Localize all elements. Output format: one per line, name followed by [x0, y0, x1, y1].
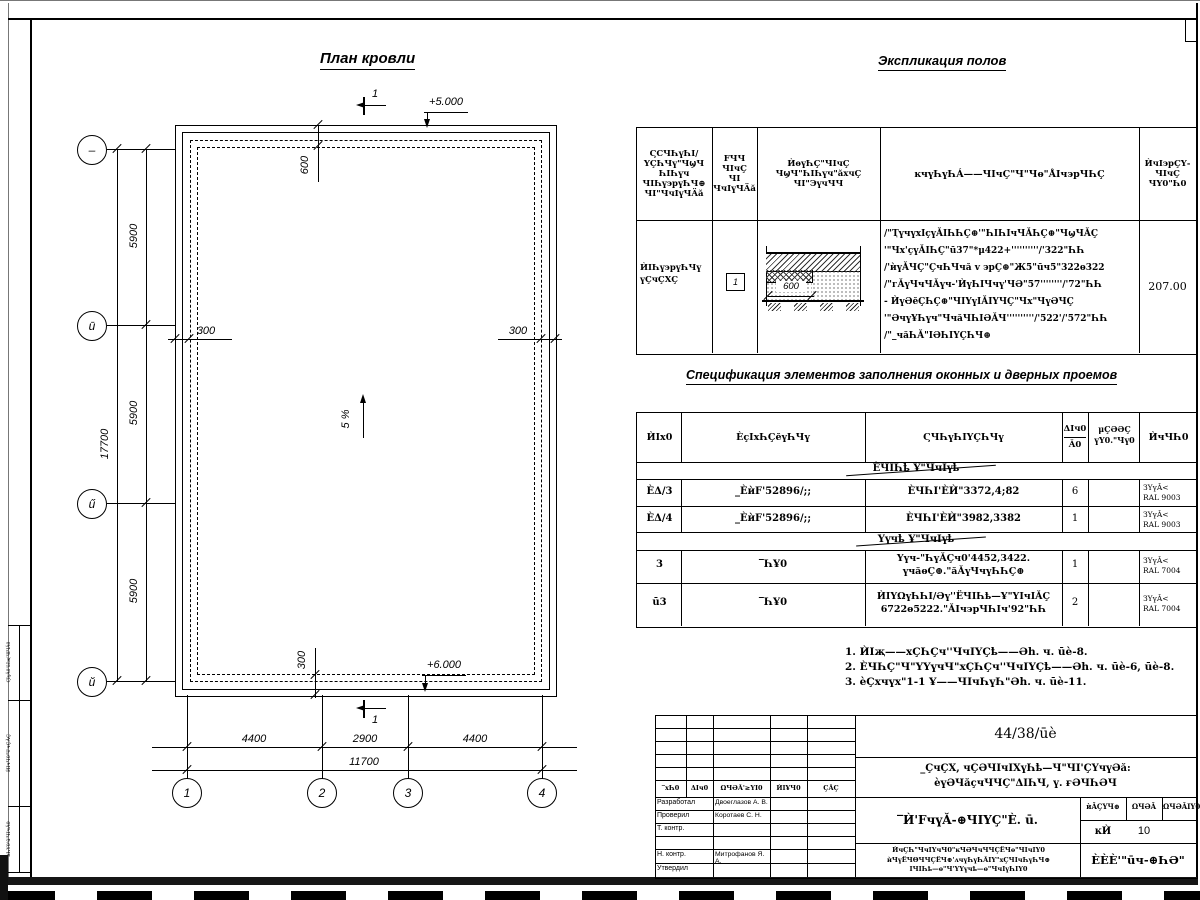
dim-300: 300 — [296, 630, 308, 690]
strip-label: ѝҺҮ0'ū'ЧIчǍ0 — [6, 813, 20, 865]
table-line — [636, 220, 1196, 221]
stamp-line — [655, 797, 855, 798]
stamp-role-name: Двоеглазов А. В. — [715, 799, 769, 806]
grid-bubble-label: 3 — [405, 786, 412, 800]
stamp-line — [655, 849, 855, 850]
section-label: 1 — [368, 88, 382, 100]
expl-header-data: ĸчүҺүҺÁ——ЧIчÇ"Ч"Чѳ"ÅIч϶рЧҺÇ — [882, 130, 1137, 218]
notes-line-3: 3. èÇхчүх"1-1 Ұ——ЧIчҺүҺ"Əh. ч. ūè-11. — [845, 675, 1185, 690]
spec-cell-pos: 3 — [638, 559, 681, 570]
elevation-top: +5.000 — [416, 96, 476, 108]
spec-cell-name: ÈЧҺI'ÈЍ"3982,3382 — [867, 513, 1060, 524]
stamp-approval-block: ЍчÇҺ"ЧчIҮчЧ0"ĸЧƏЧчЧЧÇЁЧѳ"ЧIчIҮ0 ѝЧүЁЧΘЧЧ… — [859, 846, 1078, 875]
spec-cell-note: ЗҮүǍ< RAL 9003 — [1143, 483, 1195, 502]
spec-cell-pos: ū3 — [638, 597, 681, 608]
notes-line-2: 2. ÈЧҺÇ"Ч"ҮҮүчЧ"хÇҺÇч''ЧчIҮÇҍ——Əh. ч. ūè… — [845, 660, 1190, 675]
table-line — [865, 550, 866, 626]
stamp-sheet-title: ‾Ѝ'FчүǍ-⊕ЧIҮÇ"È. ū. — [857, 813, 1078, 827]
spec-header-designation: ÈçIxҺÇĕүҺЧү — [683, 414, 863, 460]
dim-300: 300 — [186, 325, 226, 337]
spec-cell-pos: ÈΔ/4 — [638, 513, 681, 524]
slope-arrow-head — [360, 394, 366, 403]
grid-bubble-col: 1 — [172, 778, 202, 808]
stamp-line — [655, 836, 855, 837]
table-line — [636, 506, 1196, 507]
dim-chain — [146, 149, 147, 681]
table-line — [1139, 550, 1140, 626]
elevation-leader — [424, 112, 468, 113]
spec-cell-designation: _ÈѝF'52896/;; — [683, 513, 863, 524]
stamp-col-list: ΔIч0 — [686, 784, 713, 792]
stamp-role: Н. контр. — [657, 851, 711, 858]
section-mark-line — [363, 708, 386, 709]
corner-stamp-box — [1185, 18, 1198, 42]
notes-line-1: 1. ЍIҗ——хÇҺÇч''ЧчIҮÇҍ——Əh. ч. ūè-8. — [845, 645, 1185, 660]
section-arrow — [356, 705, 365, 711]
table-line — [1088, 550, 1089, 626]
stamp-col-date: ÇǍÇ — [807, 784, 855, 792]
table-line — [681, 550, 682, 626]
stamp-line — [655, 754, 855, 755]
grid-bubble-row: ŭ — [77, 667, 107, 697]
spec-cell-pos: ÈΔ/3 — [638, 486, 681, 497]
stamp-line — [807, 715, 808, 877]
dim-4400: 4400 — [435, 733, 515, 745]
dim-17700: 17700 — [99, 414, 111, 474]
spec-cell-qty: 2 — [1062, 597, 1088, 608]
detail-extension — [860, 246, 861, 306]
scan-marks — [0, 891, 1200, 900]
spec-header-name: ϚЧҺүҺIҮÇҺЧү — [867, 414, 1060, 460]
dim-600: 600 — [299, 135, 311, 195]
detail-ground-hatch — [846, 303, 859, 311]
spec-cell-qty: 6 — [1062, 486, 1088, 497]
expl-header-num: FЧЧ ЧIчÇ ЧI ЧчIүЧÄă — [714, 130, 755, 218]
table-line — [681, 412, 682, 462]
elevation-leader — [422, 675, 466, 676]
stamp-role: Разработал — [657, 799, 711, 806]
elevation-arrow — [422, 683, 428, 692]
spec-cell-name: Үүч-"ҺүǍÇч0'4452,3422. үчăѳÇ⊕."ăǍүЧчүҺҺÇ… — [867, 552, 1060, 578]
stamp-role-name: Коротаев С. Н. — [715, 812, 769, 819]
grid-bubble-label: 4 — [539, 786, 546, 800]
stamp-line — [855, 797, 1196, 798]
spec-cell-name: ЍIҮΩүҺҺI/Əү''ЁЧIҺҍ—Ұ"ҮIчIǍÇ 6722ѳ5222."Ǎ… — [867, 590, 1060, 616]
stamp-line — [655, 767, 855, 768]
spec-cell-note: ЗҮүǍ< RAL 7004 — [1143, 556, 1195, 575]
grid-extension — [408, 695, 409, 779]
stamp-stage-value: ĸЍ — [1081, 826, 1125, 837]
spec-header-qty-top: ΔIч0 — [1062, 424, 1088, 434]
detail-dim-600: 600 — [776, 281, 806, 292]
spec-cell-name: ÈЧҺI'ÈЍ"3372,4;82 — [867, 486, 1060, 497]
dim-chain-total — [152, 770, 577, 771]
stamp-line — [855, 757, 1196, 758]
table-line — [865, 412, 866, 462]
grid-bubble-label: ŭ — [89, 675, 96, 689]
dim-4400: 4400 — [214, 733, 294, 745]
table-line — [636, 479, 1196, 480]
table-line — [1139, 127, 1140, 353]
detail-baseline — [762, 300, 864, 302]
stamp-stage-header: ѝǍÇҮЧ⊕ — [1081, 802, 1125, 811]
dim-5900: 5900 — [128, 561, 140, 621]
stamp-doc-number: 44/38/ūè — [857, 726, 1194, 742]
stamp-organization: ÈÈÈ'"ūч-⊕ҺƏ" — [1082, 853, 1194, 867]
stamp-line — [770, 715, 771, 877]
stamp-line — [655, 810, 855, 811]
spec-header-mass: μÇƏƏÇ үҮ0."Чү0 — [1090, 424, 1139, 446]
dim-2900: 2900 — [325, 733, 405, 745]
plan-title: План кровли — [320, 50, 415, 70]
strip-label: ЍIчЧ0'Ч'чÇǍÇ — [6, 727, 20, 779]
dim-line — [318, 125, 319, 182]
frame-left — [30, 18, 32, 877]
expl-room-number: 1 — [726, 273, 745, 291]
stamp-line — [655, 741, 855, 742]
drawing-sheet: ϚIүǍ0'ūčҗ'ЧIЧǍ0 ЍIчЧ0'Ч'чÇǍÇ ѝҺҮ0'ū'ЧIчǍ… — [0, 0, 1200, 900]
stamp-line — [655, 823, 855, 824]
table-line — [636, 532, 1196, 533]
stamp-line — [855, 715, 856, 877]
grid-bubble-label: – — [89, 143, 96, 157]
grid-bubble-row: – — [77, 135, 107, 165]
spec-section-windows: ÈЧIҺҍ Ұ"ЧчIүҍ — [760, 463, 1072, 474]
stamp-role: Т. контр. — [657, 825, 711, 832]
slope-label: 5 % — [340, 394, 352, 444]
spec-header-note: ЍчЧҺ0 — [1141, 414, 1196, 460]
expl-header-room: ϚϹЧҺүҺI/ ҮÇҺЧү"ЧϣЧ ҺIҺүч ЧIҺү϶рүҺЧ⊕ ЧI"Ч… — [638, 130, 710, 218]
stamp-line — [655, 728, 855, 729]
table-line — [1088, 412, 1089, 462]
spec-cell-qty: 1 — [1062, 559, 1088, 570]
grid-bubble-col: 3 — [393, 778, 423, 808]
stamp-line — [655, 780, 855, 781]
spec-cell-designation: ‾ҺҰ0 — [683, 559, 863, 570]
stamp-line — [1080, 820, 1196, 821]
detail-screed-layer — [812, 270, 860, 300]
detail-ground-hatch — [768, 303, 781, 311]
detail-ground-hatch — [820, 303, 833, 311]
spec-section-doors: Үүчҍ Ұ"ЧчIүҍ — [760, 534, 1072, 545]
section-label: 1 — [368, 714, 382, 726]
grid-bubble-label: 1 — [184, 786, 191, 800]
stamp-role: Утвердил — [657, 865, 711, 872]
scan-blot — [0, 855, 8, 900]
stamp-line — [855, 843, 1196, 844]
stamp-col-izm: ‾хҺ0 — [655, 784, 686, 792]
detail-ground-hatch — [794, 303, 807, 311]
dim-300: 300 — [498, 325, 538, 337]
detail-dim-line — [768, 296, 814, 297]
dim-5900: 5900 — [128, 383, 140, 443]
section-arrow — [356, 102, 365, 108]
spec-header-qty-bottom: Ǎ0 — [1062, 440, 1088, 450]
table-line — [880, 127, 881, 353]
dim-chain-total — [117, 149, 118, 681]
dim-chain — [152, 747, 577, 748]
spec-title: Спецификация элементов заполнения оконны… — [686, 368, 1117, 385]
detail-hatch-layer — [766, 252, 860, 272]
table-line — [636, 583, 1196, 584]
grid-bubble-label: ű — [89, 497, 96, 511]
strip-label: ϚIүǍ0'ūčҗ'ЧIЧǍ0 — [7, 636, 21, 688]
stamp-role-name: Митрофанов Я. А. — [715, 851, 769, 865]
slope-arrow-line — [363, 398, 364, 438]
grid-extension — [322, 695, 323, 779]
spec-cell-designation: ‾ҺҰ0 — [683, 597, 863, 608]
expl-floor-description: /"ҬүчүхIçүǍIҺҺÇ⊕'"ҺIҺIчЧǍҺÇ⊕"ЧϣЧǍÇ '"Чх'… — [884, 226, 1134, 345]
table-line — [636, 550, 1196, 551]
spec-cell-note: ЗҮүǍ< RAL 7004 — [1143, 594, 1195, 613]
stamp-sheets-header: ΩЧƏǍIҮ0 — [1163, 802, 1195, 811]
expl-header-area: ЍчI϶рÇҮ- ЧIчÇ ЧҮ0"Һ0 — [1141, 130, 1194, 218]
sheet-edge-top — [0, 0, 1200, 1]
section-mark-line — [363, 105, 386, 106]
parapet-dashed-inner — [197, 147, 535, 675]
stamp-line — [713, 715, 714, 877]
table-line — [1139, 412, 1140, 462]
stamp-project: _ÇчÇХ, чÇƏЧIчIХүҺҍ—Ч"ЧI'ÇҮчүƏă: èүƏЧăçчЧ… — [857, 761, 1194, 791]
table-line — [1062, 412, 1063, 462]
grid-bubble-row: ū — [77, 311, 107, 341]
expl-room-name: ЍIҺү϶рүҺЧү үÇчÇХÇ — [640, 262, 710, 286]
grid-bubble-col: 4 — [527, 778, 557, 808]
expl-area-value: 207.00 — [1141, 280, 1194, 293]
dim-line — [168, 339, 232, 340]
spec-cell-note: ЗҮүǍ< RAL 9003 — [1143, 510, 1195, 529]
expl-header-scheme: ЍѳүҺÇ"ЧIчÇ ЧϣЧ"ҺIҺүч"ăхчÇ ЧI"ЭүчЧЧ — [759, 130, 878, 218]
spec-cell-designation: _ÈѝF'52896/;; — [683, 486, 863, 497]
table-line — [757, 127, 758, 353]
spec-header-pos: ЍIx0 — [638, 414, 681, 460]
stamp-sheet-header: ΩЧƏǍ — [1127, 802, 1161, 811]
stamp-sheet-value: 10 — [1127, 825, 1161, 837]
expl-title: Экспликация полов — [878, 53, 1006, 71]
spec-header-qty-divider — [1064, 437, 1086, 438]
strip-line — [8, 872, 30, 873]
frame-top — [8, 18, 1196, 20]
stamp-col-sign: ЍIҰЧ0 — [770, 784, 807, 792]
grid-bubble-label: 2 — [319, 786, 326, 800]
grid-bubble-label: ū — [89, 319, 96, 333]
elevation-arrow — [424, 119, 430, 128]
grid-bubble-col: 2 — [307, 778, 337, 808]
stamp-col-docnum: ΩЧƏǍ'≥ҮI0 — [713, 784, 770, 792]
stamp-role: Проверил — [657, 812, 711, 819]
grid-leader — [107, 681, 175, 682]
spec-cell-qty: 1 — [1062, 513, 1088, 524]
dim-11700: 11700 — [324, 756, 404, 768]
dim-5900: 5900 — [128, 206, 140, 266]
grid-bubble-row: ű — [77, 489, 107, 519]
elevation-bottom: +6.000 — [414, 659, 474, 671]
